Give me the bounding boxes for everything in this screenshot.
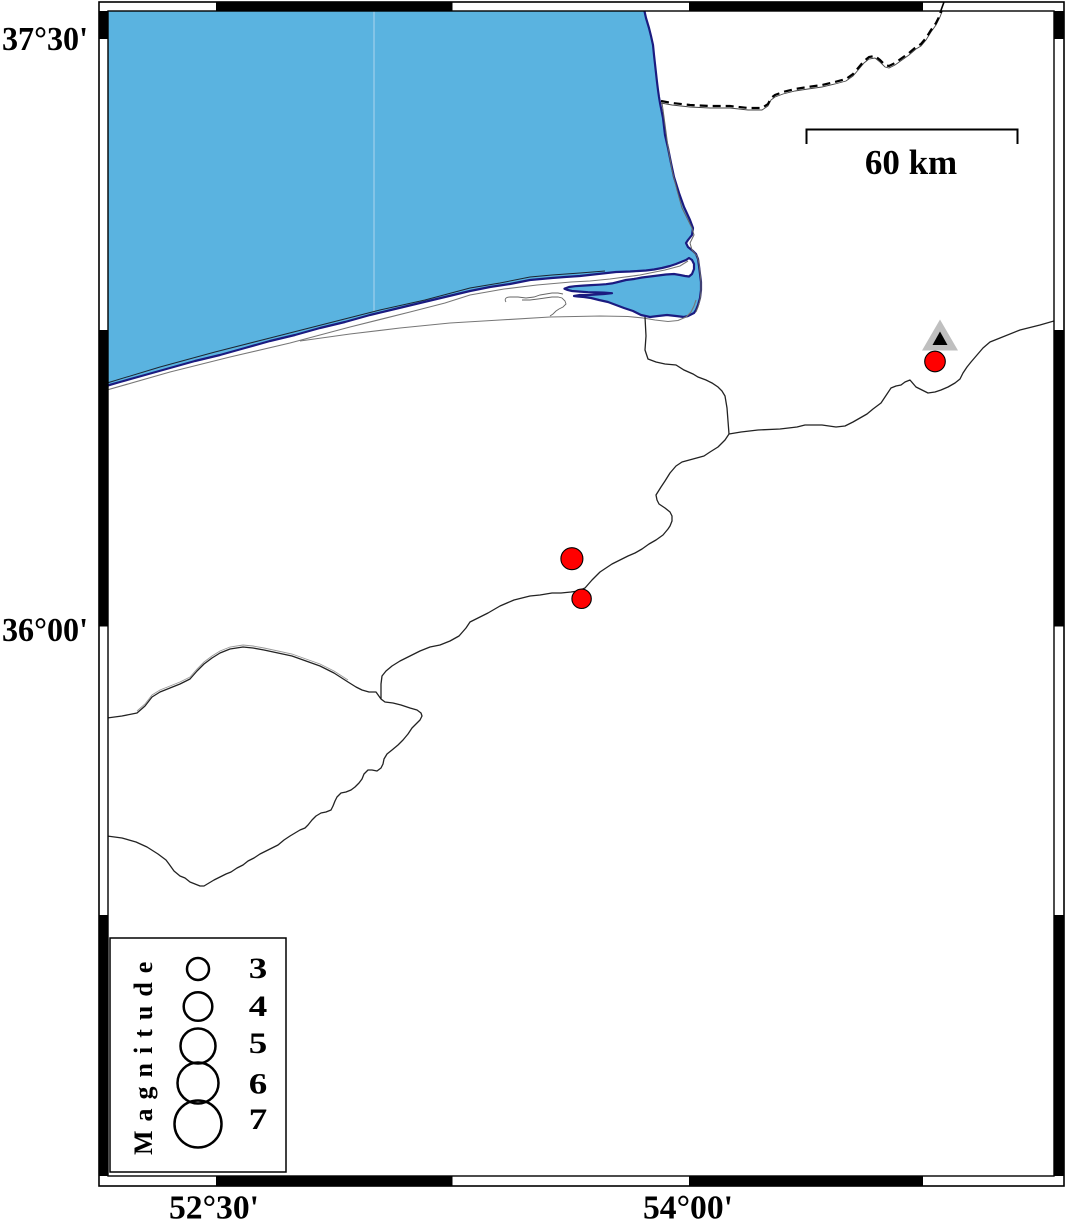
svg-text:3: 3 bbox=[249, 952, 268, 985]
svg-text:54°00': 54°00' bbox=[643, 1190, 733, 1224]
svg-text:5: 5 bbox=[249, 1027, 268, 1060]
svg-text:60 km: 60 km bbox=[865, 143, 957, 182]
svg-text:37°30': 37°30' bbox=[2, 21, 88, 58]
svg-text:7: 7 bbox=[249, 1103, 268, 1136]
svg-text:6: 6 bbox=[249, 1068, 268, 1101]
svg-text:4: 4 bbox=[249, 990, 268, 1023]
svg-text:36°00': 36°00' bbox=[2, 612, 88, 649]
svg-text:Magnitude: Magnitude bbox=[129, 953, 158, 1155]
svg-text:52°30': 52°30' bbox=[169, 1190, 259, 1224]
